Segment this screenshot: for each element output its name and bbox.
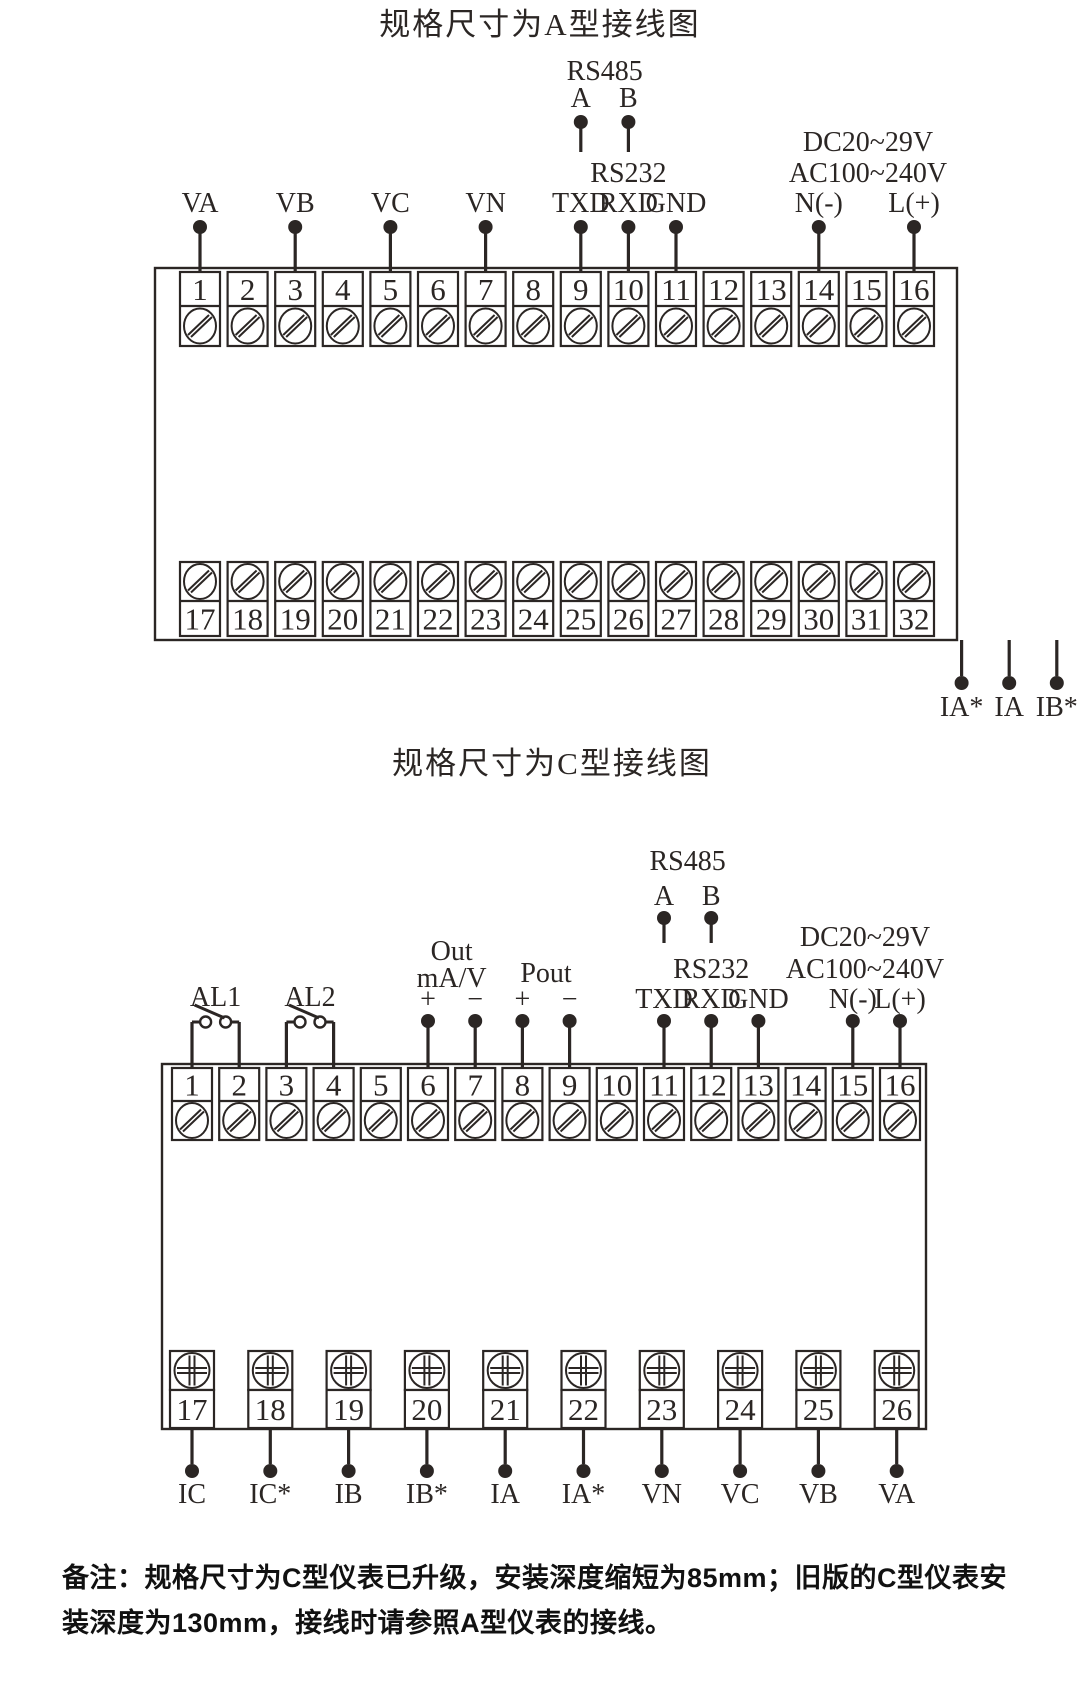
terminal-number: 7: [478, 272, 494, 307]
terminal-number: 18: [255, 1392, 286, 1427]
power-rating-dc: DC20~29V: [803, 127, 933, 158]
terminal-box: [640, 1351, 684, 1390]
note-text: 备注：规格尺寸为C型仪表已升级，安装深度缩短为85mm；旧版的C型仪表安装深度为…: [62, 1556, 1018, 1646]
connection-dot: [420, 1464, 434, 1478]
terminal-number: 26: [613, 601, 644, 636]
terminal: 3: [275, 272, 315, 346]
terminal: 32: [894, 562, 934, 636]
terminal-number: 13: [756, 272, 787, 307]
terminal-number: 24: [725, 1392, 757, 1427]
terminal: 4: [314, 1067, 354, 1140]
pin-label-A: A: [654, 881, 675, 912]
terminal-number: 28: [708, 601, 739, 636]
wiring-diagram-page: 规格尺寸为A型接线图 12345678910111213141516171819…: [0, 0, 1080, 1682]
terminal-number: 19: [333, 1392, 364, 1427]
terminal: 25: [796, 1351, 840, 1428]
terminal-number: 6: [420, 1067, 436, 1102]
terminal-number: 11: [649, 1067, 679, 1102]
terminal-number: 6: [430, 272, 446, 307]
terminal-number: 11: [661, 272, 691, 307]
terminal: 18: [248, 1351, 292, 1428]
terminal-number: 16: [899, 272, 930, 307]
connection-dot: [621, 220, 635, 234]
terminal: 1: [172, 1067, 212, 1140]
terminal-number: 4: [335, 272, 351, 307]
connection-dot: [288, 220, 302, 234]
connection-dot: [563, 1014, 577, 1028]
wiring-diagram-canvas: 规格尺寸为A型接线图 12345678910111213141516171819…: [0, 0, 1080, 1540]
terminal-box: [405, 1351, 449, 1390]
relay-label: AL1: [190, 982, 241, 1013]
terminal-number: 13: [743, 1067, 774, 1102]
terminal: 14: [799, 272, 839, 346]
connection-dot: [342, 1464, 356, 1478]
connection-dot: [1050, 676, 1064, 690]
terminal-number: 23: [470, 601, 501, 636]
terminal: 9: [561, 272, 601, 346]
terminal-number: 3: [279, 1067, 295, 1102]
terminal: 9: [550, 1067, 590, 1140]
relay-switch-AL2: AL2: [284, 982, 335, 1068]
pin-label-IC*: IC*: [249, 1479, 291, 1510]
power-rating-ac: AC100~240V: [786, 954, 944, 985]
connection-dot: [704, 1014, 718, 1028]
connection-dot: [263, 1464, 277, 1478]
terminal-number: 15: [837, 1067, 868, 1102]
connection-dot: [577, 1464, 591, 1478]
terminal: 27: [656, 562, 696, 636]
terminal: 7: [455, 1067, 495, 1140]
terminal: 16: [894, 272, 934, 346]
terminal: 2: [219, 1067, 259, 1140]
pin-label-IC: IC: [178, 1479, 206, 1510]
pin-label-IA*: IA*: [940, 692, 984, 723]
terminal: 23: [640, 1351, 684, 1428]
terminal-number: 12: [696, 1067, 727, 1102]
terminal: 16: [880, 1067, 920, 1140]
terminal: 21: [370, 562, 410, 636]
terminal-number: 14: [803, 272, 835, 307]
terminal: 18: [228, 562, 268, 636]
terminal: 13: [738, 1067, 778, 1140]
terminal-number: 8: [525, 272, 541, 307]
rs232-label: RS232: [673, 954, 749, 985]
pin-label-+: +: [515, 984, 531, 1015]
pin-label-B: B: [619, 83, 638, 114]
terminal: 19: [275, 562, 315, 636]
terminal: 25: [561, 562, 601, 636]
terminal-number: 29: [756, 601, 787, 636]
terminal: 8: [502, 1067, 542, 1140]
terminal: 1: [180, 272, 220, 346]
terminal: 15: [846, 272, 886, 346]
terminal-number: 8: [515, 1067, 531, 1102]
terminal: 13: [751, 272, 791, 346]
terminal-box: [718, 1351, 762, 1390]
terminal-box: [248, 1351, 292, 1390]
terminal-number: 22: [423, 601, 454, 636]
terminal-number: 5: [383, 272, 399, 307]
connection-dot: [515, 1014, 529, 1028]
terminal-number: 12: [708, 272, 739, 307]
pin-label-IB: IB: [335, 1479, 363, 1510]
connection-dot: [574, 115, 588, 129]
diagram-c: 1234567891011121314151617181920212223242…: [162, 846, 944, 1510]
diagram-a: 1234567891011121314151617181920212223242…: [155, 56, 1080, 765]
terminal-number: 3: [287, 272, 303, 307]
connection-dot: [811, 1464, 825, 1478]
pin-label-VB: VB: [799, 1479, 838, 1510]
terminal: 20: [323, 562, 363, 636]
terminal: 24: [513, 562, 553, 636]
terminal: 29: [751, 562, 791, 636]
connection-dot: [383, 220, 397, 234]
connection-dot: [468, 1014, 482, 1028]
terminal-box: [875, 1351, 919, 1390]
connection-dot: [890, 1464, 904, 1478]
connection-dot: [498, 1464, 512, 1478]
terminal-number: 4: [326, 1067, 342, 1102]
terminal: 19: [327, 1351, 371, 1428]
terminal-number: 19: [280, 601, 311, 636]
terminal-number: 32: [899, 601, 930, 636]
terminal-number: 7: [467, 1067, 483, 1102]
pin-label-IB*: IB*: [1036, 692, 1078, 723]
connection-dot: [657, 1014, 671, 1028]
diagram-a-title: 规格尺寸为A型接线图: [379, 7, 700, 42]
terminal-number: 18: [232, 601, 263, 636]
connection-dot: [733, 1464, 747, 1478]
terminal-number: 21: [490, 1392, 521, 1427]
terminal-number: 24: [518, 601, 550, 636]
terminal-number: 15: [851, 272, 882, 307]
pin-label-IA: IA: [994, 692, 1024, 723]
diagram-c-title: 规格尺寸为C型接线图: [392, 746, 712, 781]
terminal: 8: [513, 272, 553, 346]
terminal-number: 10: [613, 272, 644, 307]
terminal-number: 27: [661, 601, 692, 636]
connection-dot: [185, 1464, 199, 1478]
terminal: 4: [323, 272, 363, 346]
pin-label-VB: VB: [276, 188, 315, 219]
connection-dot: [893, 1014, 907, 1028]
relay-label: AL2: [284, 982, 335, 1013]
terminal-number: 16: [885, 1067, 916, 1102]
terminal-number: 1: [184, 1067, 200, 1102]
terminal: 7: [466, 272, 506, 346]
pin-label-L(+): L(+): [888, 188, 940, 219]
connection-dot: [1002, 676, 1016, 690]
terminal-number: 2: [231, 1067, 247, 1102]
terminal-number: 22: [568, 1392, 599, 1427]
terminal: 17: [170, 1351, 214, 1428]
terminal: 12: [691, 1067, 731, 1140]
terminal-number: 31: [851, 601, 882, 636]
terminal-number: 20: [411, 1392, 442, 1427]
contact-point: [295, 1017, 306, 1028]
terminal: 5: [370, 272, 410, 346]
terminal: 14: [786, 1067, 826, 1140]
pin-label-−: −: [467, 984, 483, 1015]
pin-label-VN: VN: [642, 1479, 682, 1510]
pin-label-B: B: [702, 881, 721, 912]
terminal: 26: [608, 562, 648, 636]
pin-label-N(-): N(-): [829, 984, 877, 1015]
terminal: 6: [418, 272, 458, 346]
pin-label-IA*: IA*: [562, 1479, 606, 1510]
terminal: 17: [180, 562, 220, 636]
pin-label-GND: GND: [646, 188, 707, 219]
power-rating-dc: DC20~29V: [800, 922, 930, 953]
connection-dot: [421, 1014, 435, 1028]
pin-label-IA: IA: [490, 1479, 520, 1510]
terminal: 26: [875, 1351, 919, 1428]
terminal-box: [796, 1351, 840, 1390]
contact-point: [200, 1017, 211, 1028]
terminal-number: 5: [373, 1067, 389, 1102]
terminal: 28: [704, 562, 744, 636]
pin-label-VA: VA: [182, 188, 220, 219]
connection-dot: [621, 115, 635, 129]
power-rating-ac: AC100~240V: [789, 158, 947, 189]
connection-dot: [655, 1464, 669, 1478]
pin-label-A: A: [571, 83, 592, 114]
pin-label-IB*: IB*: [406, 1479, 448, 1510]
terminal-number: 20: [327, 601, 358, 636]
connection-dot: [669, 220, 683, 234]
terminal: 31: [846, 562, 886, 636]
terminal-number: 10: [601, 1067, 632, 1102]
terminal-number: 1: [192, 272, 208, 307]
connection-dot: [479, 220, 493, 234]
terminal-number: 14: [790, 1067, 822, 1102]
terminal-box: [483, 1351, 527, 1390]
relay-switch-AL1: AL1: [190, 982, 241, 1068]
terminal: 12: [704, 272, 744, 346]
terminal-number: 17: [177, 1392, 208, 1427]
terminal: 24: [718, 1351, 762, 1428]
connection-dot: [907, 220, 921, 234]
terminal: 6: [408, 1067, 448, 1140]
pin-label-GND: GND: [728, 984, 789, 1015]
terminal-number: 2: [240, 272, 256, 307]
pin-label-VA: VA: [878, 1479, 916, 1510]
terminal: 22: [418, 562, 458, 636]
connection-dot: [704, 911, 718, 925]
connection-dot: [955, 676, 969, 690]
rs232-label: RS232: [590, 158, 666, 189]
terminal: 2: [228, 272, 268, 346]
terminal-box: [327, 1351, 371, 1390]
terminal: 15: [833, 1067, 873, 1140]
terminal-number: 30: [803, 601, 834, 636]
terminal-number: 9: [562, 1067, 578, 1102]
terminal: 3: [266, 1067, 306, 1140]
terminal: 10: [597, 1067, 637, 1140]
terminal-number: 26: [881, 1392, 912, 1427]
pin-label-N(-): N(-): [795, 188, 843, 219]
terminal-number: 25: [803, 1392, 834, 1427]
pin-label-L(+): L(+): [874, 984, 926, 1015]
pin-label-+: +: [420, 984, 436, 1015]
terminal-number: 23: [646, 1392, 677, 1427]
terminal-box: [562, 1351, 606, 1390]
terminal: 23: [466, 562, 506, 636]
terminal: 22: [562, 1351, 606, 1428]
terminal: 20: [405, 1351, 449, 1428]
connection-dot: [846, 1014, 860, 1028]
connection-dot: [751, 1014, 765, 1028]
terminal-number: 17: [185, 601, 216, 636]
pin-label-VC: VC: [721, 1479, 760, 1510]
terminal: 30: [799, 562, 839, 636]
pin-label-VN: VN: [465, 188, 505, 219]
terminal: 11: [644, 1067, 684, 1140]
connection-dot: [574, 220, 588, 234]
connection-dot: [657, 911, 671, 925]
connection-dot: [812, 220, 826, 234]
rs485-label: RS485: [649, 846, 725, 877]
pin-label-−: −: [562, 984, 578, 1015]
terminal-number: 25: [565, 601, 596, 636]
terminal: 11: [656, 272, 696, 346]
pin-label-VC: VC: [371, 188, 410, 219]
terminal: 5: [361, 1067, 401, 1140]
terminal-number: 21: [375, 601, 406, 636]
terminal-box: [170, 1351, 214, 1390]
terminal: 10: [608, 272, 648, 346]
terminal: 21: [483, 1351, 527, 1428]
connection-dot: [193, 220, 207, 234]
terminal-number: 9: [573, 272, 589, 307]
